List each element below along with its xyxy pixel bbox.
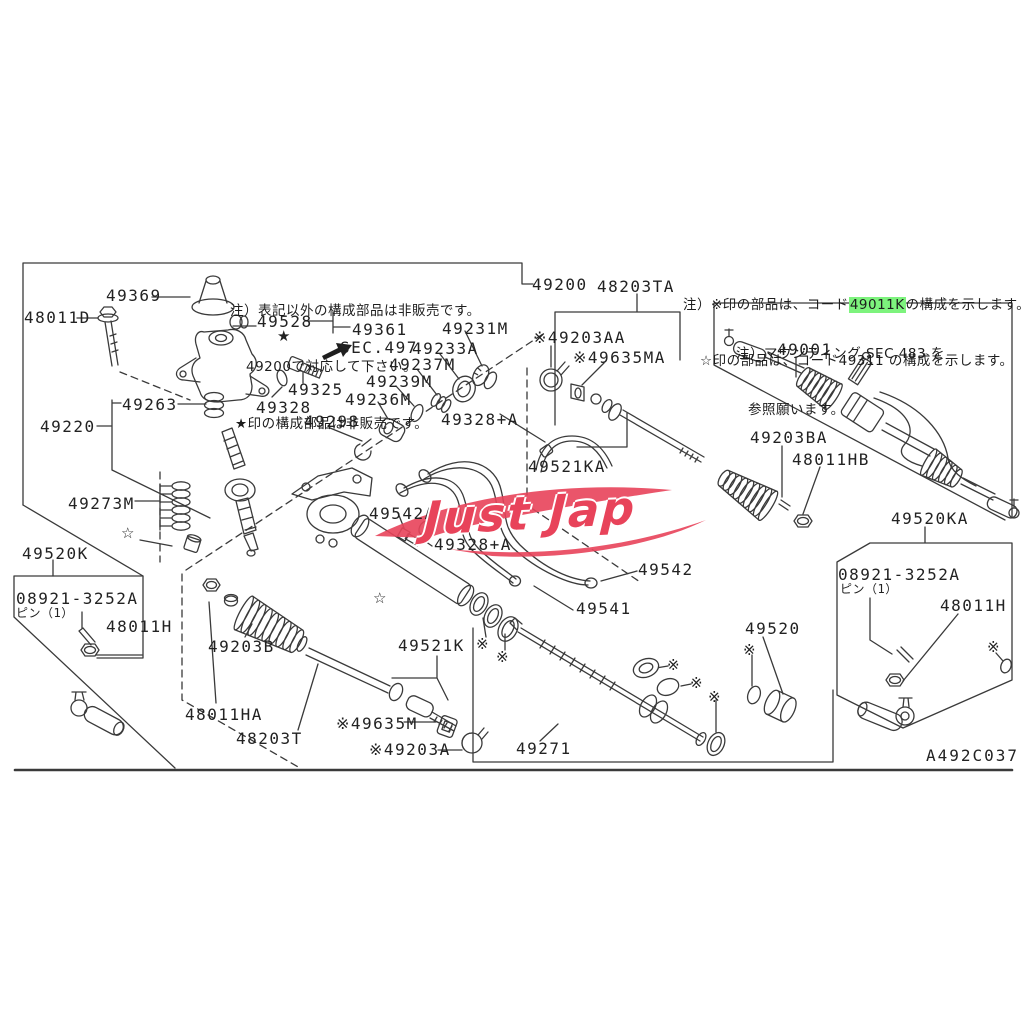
watermark-text: Just Jap bbox=[423, 480, 638, 545]
part-label-48011H: 48011H bbox=[106, 619, 173, 636]
part-label-49203AA: ※49203AA bbox=[533, 330, 626, 347]
part-label-49203BA: 49203BA bbox=[750, 430, 828, 447]
part-label-49325: 49325 bbox=[288, 382, 344, 399]
part-label-48011HA: 48011HA bbox=[185, 707, 263, 724]
part-label-49520K: 49520K bbox=[22, 546, 89, 563]
part-label-48203TA: 48203TA bbox=[597, 279, 675, 296]
note-line: 注）マウンティング SEC.483 を bbox=[736, 345, 945, 364]
part-label-49298: 49298 bbox=[304, 414, 360, 431]
part-label-48011D: 48011D bbox=[24, 310, 91, 327]
part-label-49001: 49001 bbox=[777, 342, 833, 359]
note-line: 参照願います。 bbox=[748, 401, 945, 420]
part-label-49220: 49220 bbox=[40, 419, 96, 436]
component-ref-mark: ※ bbox=[690, 676, 703, 692]
note-mounting: 注）マウンティング SEC.483 を 参照願います。 bbox=[736, 307, 945, 439]
part-label-49361: 49361 bbox=[352, 322, 408, 339]
star-filled-mark: ★ bbox=[277, 329, 290, 345]
part-label-pin1-right: ピン（1） bbox=[840, 583, 898, 596]
diagram-code: A492C037 bbox=[926, 748, 1019, 765]
component-ref-mark: ※ bbox=[708, 690, 721, 706]
part-label-49263: 49263 bbox=[122, 397, 178, 414]
part-label-49520: 49520 bbox=[745, 621, 801, 638]
part-label-49203A: ※49203A bbox=[369, 742, 451, 759]
bolt-sketch bbox=[98, 307, 118, 366]
component-ref-mark: ※ bbox=[667, 658, 680, 674]
part-label-49635M: ※49635M bbox=[336, 716, 418, 733]
part-label-49271: 49271 bbox=[516, 741, 572, 758]
part-label-49541: 49541 bbox=[576, 601, 632, 618]
part-label-49521KA: 49521KA bbox=[528, 459, 606, 476]
part-label-48011H-right: 48011H bbox=[940, 598, 1007, 615]
parts-diagram: 注）表記以外の構成部品は非販売です。 49200で対応して下さい。 ★印の構成部… bbox=[0, 0, 1024, 1024]
part-label-49520KA: 49520KA bbox=[891, 511, 969, 528]
part-label-49635MA: ※49635MA bbox=[573, 350, 666, 367]
column-boot-sketch bbox=[192, 276, 234, 315]
component-ref-mark: ※ bbox=[476, 637, 489, 653]
part-label-49273M: 49273M bbox=[68, 496, 135, 513]
right-tie-rod-end-sketch bbox=[855, 647, 914, 733]
part-label-49542: 49542 bbox=[638, 562, 694, 579]
part-label-49369: 49369 bbox=[106, 288, 162, 305]
part-label-49200: 49200 bbox=[532, 277, 588, 294]
part-label-pin1: ピン（1） bbox=[16, 607, 74, 620]
part-label-49239M: 49239M bbox=[366, 374, 433, 391]
component-ref-mark: ※ bbox=[743, 643, 756, 659]
part-label-49236M: 49236M bbox=[345, 392, 412, 409]
left-tie-rod-end-sketch bbox=[71, 628, 127, 738]
component-ref-mark: ※ bbox=[987, 640, 1000, 656]
part-label-48011HB: 48011HB bbox=[792, 452, 870, 469]
star-open-mark: ☆ bbox=[121, 526, 134, 542]
part-label-49521K: 49521K bbox=[398, 638, 465, 655]
part-label-49231M: 49231M bbox=[442, 321, 509, 338]
part-label-48203T: 48203T bbox=[236, 731, 303, 748]
component-ref-mark: ※ bbox=[496, 650, 509, 666]
part-label-49328A-upper: 49328+A bbox=[441, 412, 519, 429]
part-label-49203B: 49203B bbox=[208, 639, 275, 656]
star-open-mark: ☆ bbox=[373, 591, 386, 607]
